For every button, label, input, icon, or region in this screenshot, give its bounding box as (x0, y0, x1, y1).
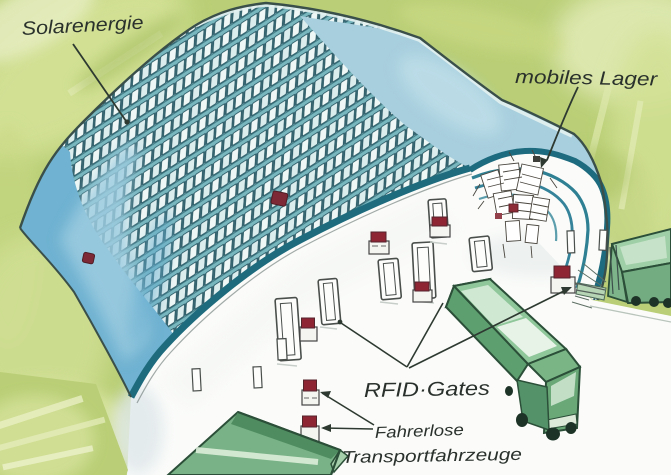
svg-text:Transportfahrzeuge: Transportfahrzeuge (342, 445, 522, 467)
svg-text:RFID·Gates: RFID·Gates (364, 378, 490, 402)
svg-text:Fahrerlose: Fahrerlose (375, 422, 465, 442)
svg-text:mobiles Lager: mobiles Lager (515, 67, 658, 90)
